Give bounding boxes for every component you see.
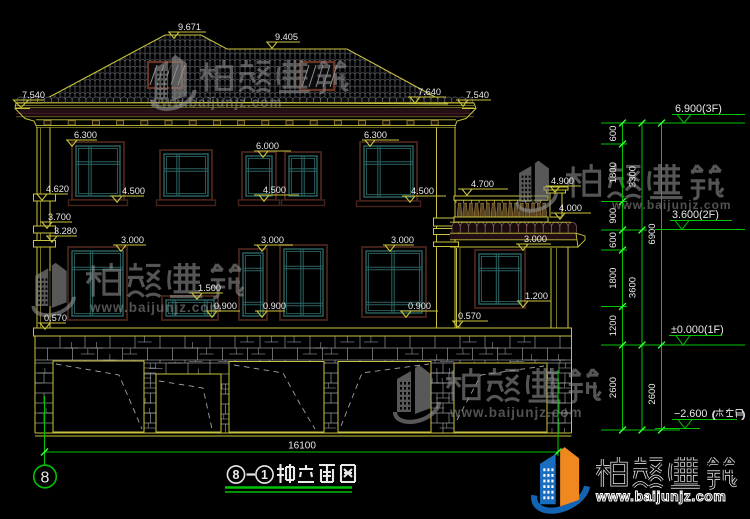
svg-text:4.500: 4.500 xyxy=(411,186,434,196)
svg-text:7.540: 7.540 xyxy=(22,90,45,100)
svg-text:1.500: 1.500 xyxy=(198,283,221,293)
svg-text:1800: 1800 xyxy=(608,268,619,289)
svg-text:2600: 2600 xyxy=(608,377,619,398)
svg-text:6.900(3F): 6.900(3F) xyxy=(675,103,722,115)
svg-text:7.640: 7.640 xyxy=(418,87,441,97)
svg-text:3300: 3300 xyxy=(628,166,639,187)
svg-text:2600: 2600 xyxy=(647,383,658,404)
svg-text:6900: 6900 xyxy=(647,223,658,244)
svg-text:3.000: 3.000 xyxy=(121,235,144,245)
svg-text:1: 1 xyxy=(261,468,268,482)
svg-text:4.500: 4.500 xyxy=(122,186,145,196)
svg-text:3.000: 3.000 xyxy=(524,234,547,244)
svg-text:0.900: 0.900 xyxy=(408,301,431,311)
svg-text:4.500: 4.500 xyxy=(263,185,286,195)
svg-text:3.000: 3.000 xyxy=(391,235,414,245)
svg-text:4.700: 4.700 xyxy=(471,179,494,189)
svg-text:6.300: 6.300 xyxy=(364,130,387,140)
svg-text:www.baijunjz.com: www.baijunjz.com xyxy=(89,300,223,315)
svg-text:6.000: 6.000 xyxy=(256,141,279,151)
svg-text:0.570: 0.570 xyxy=(44,313,67,323)
svg-text:www.baijunjz.com: www.baijunjz.com xyxy=(149,95,283,110)
svg-text:600: 600 xyxy=(608,232,619,248)
svg-text:3.000: 3.000 xyxy=(261,235,284,245)
svg-text:9.405: 9.405 xyxy=(275,32,298,42)
svg-text:−2.600: −2.600 xyxy=(674,408,707,420)
svg-text:3600: 3600 xyxy=(628,277,639,298)
svg-text:900: 900 xyxy=(608,208,619,224)
svg-text:0.900: 0.900 xyxy=(214,301,237,311)
svg-text:0.570: 0.570 xyxy=(458,311,481,321)
svg-text:3.280: 3.280 xyxy=(54,226,77,236)
svg-text:16100: 16100 xyxy=(288,441,316,452)
svg-text:www.baijunjz.com: www.baijunjz.com xyxy=(595,488,726,504)
svg-text:3.600(2F): 3.600(2F) xyxy=(672,209,719,221)
svg-text:www.baijunjz.com: www.baijunjz.com xyxy=(449,405,583,420)
svg-text:±0.000(1F): ±0.000(1F) xyxy=(671,324,724,336)
svg-text:1800: 1800 xyxy=(608,162,619,183)
svg-text:1200: 1200 xyxy=(608,315,619,336)
svg-text:9.671: 9.671 xyxy=(178,22,201,32)
svg-text:8: 8 xyxy=(41,470,50,487)
svg-text:4.000: 4.000 xyxy=(559,203,582,213)
svg-text:1.200: 1.200 xyxy=(525,291,548,301)
svg-text:6.300: 6.300 xyxy=(74,130,97,140)
svg-text:4.900: 4.900 xyxy=(551,176,574,186)
svg-text:0.900: 0.900 xyxy=(263,301,286,311)
svg-text:8: 8 xyxy=(233,468,240,482)
svg-text:4.620: 4.620 xyxy=(46,184,69,194)
svg-text:7.540: 7.540 xyxy=(466,90,489,100)
svg-text:3.700: 3.700 xyxy=(48,212,71,222)
svg-text:600: 600 xyxy=(608,126,619,142)
